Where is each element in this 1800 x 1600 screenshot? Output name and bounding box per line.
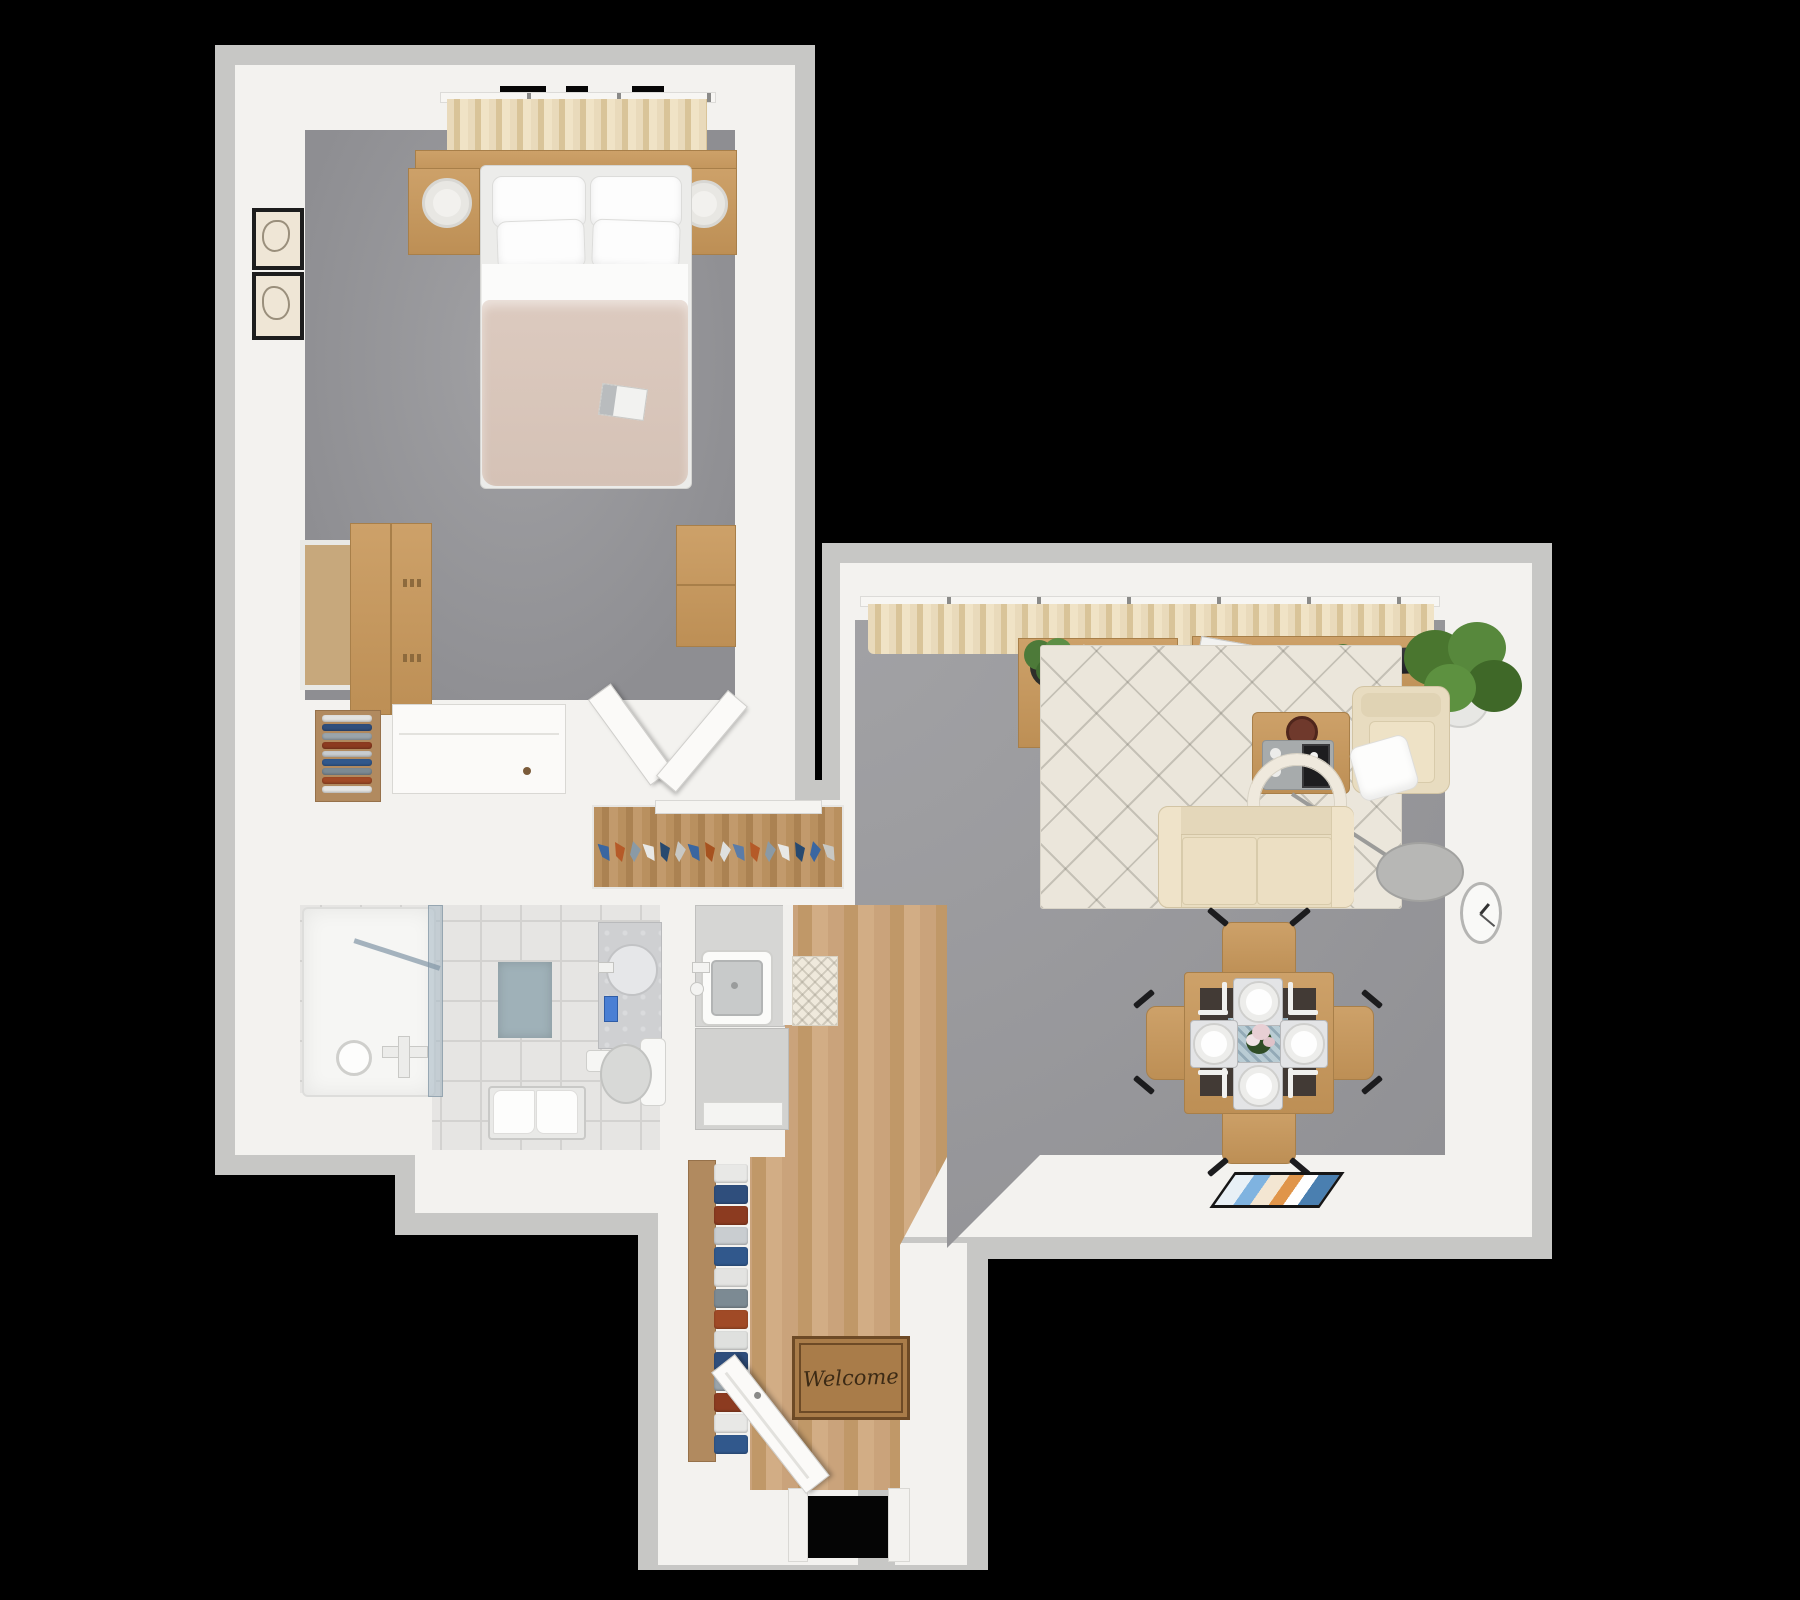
clothes-hanger (822, 841, 837, 863)
kitchen-sink-basin (711, 960, 763, 1016)
clothes-hanger (705, 842, 715, 862)
clothes-hanger (687, 841, 702, 863)
centerpiece-flowers (1252, 1024, 1270, 1040)
clock-hand-minute (1479, 913, 1495, 927)
front-door-jamb (888, 1488, 910, 1562)
sofa (1158, 806, 1354, 908)
sink-drain (731, 982, 738, 989)
kitchen-mat (792, 956, 838, 1026)
arc-lamp-base (1376, 842, 1464, 902)
sofa-armrest (1159, 807, 1182, 907)
dresser-drawer-line (677, 584, 735, 586)
floorplan-render: Welcome XMAX (0, 0, 1800, 1600)
folded-cloth (714, 1310, 748, 1329)
sofa-seat-cushion (1182, 837, 1257, 905)
dinner-plate (1283, 1023, 1325, 1065)
closet-cabinet (392, 704, 566, 794)
leaning-mirror (300, 540, 356, 690)
cabinet-knob (523, 767, 531, 775)
cutlery (1288, 982, 1293, 1012)
wall-clock (1460, 882, 1502, 944)
dinner-plate (1193, 1023, 1235, 1065)
sofa-back (1181, 807, 1331, 835)
armchair-back (1361, 693, 1441, 717)
dinner-plate (1238, 1065, 1280, 1107)
toilet-bowl (600, 1044, 652, 1104)
folded-cloth (714, 1164, 748, 1183)
folded-cloth (322, 759, 372, 766)
folded-cloth (322, 751, 372, 758)
hanging-closet-shelf (655, 800, 822, 814)
folded-cloth (714, 1227, 748, 1246)
clothes-hanger (777, 841, 792, 863)
folded-cloth (714, 1414, 748, 1433)
folded-towel (536, 1090, 578, 1134)
wardrobe-vents (403, 654, 421, 662)
folded-towel (493, 1090, 535, 1134)
cutlery (1222, 982, 1227, 1012)
sink-faucet (692, 962, 710, 973)
cutlery (1288, 1070, 1318, 1075)
folded-cloth (322, 715, 372, 722)
cabinet-drawer-line (399, 733, 559, 735)
wall-art-scribble (262, 286, 290, 320)
shower-controls (398, 1036, 410, 1078)
bath-mat (498, 962, 552, 1038)
folded-cloth (714, 1206, 748, 1225)
wardrobe-vents (403, 579, 421, 587)
folded-cloth (714, 1185, 748, 1204)
folded-cloth (322, 786, 372, 793)
door-knob (753, 1391, 763, 1401)
vanity-faucet (598, 962, 614, 973)
front-door-gap (806, 1496, 890, 1558)
cutlery (1198, 1010, 1228, 1015)
refrigerator-door (703, 1102, 783, 1126)
folded-cloth (322, 768, 372, 775)
clothes-hanger (627, 841, 642, 863)
sink-faucet-handle (690, 982, 704, 996)
bed-duvet (482, 300, 688, 486)
folded-cloth (714, 1247, 748, 1266)
clothes-hanger (762, 841, 777, 863)
shower-head (336, 1040, 372, 1076)
sofa-armrest (1331, 807, 1354, 907)
clothes-hanger (615, 842, 625, 862)
folded-cloth (322, 777, 372, 784)
folded-cloth (322, 742, 372, 749)
front-door-jamb (788, 1488, 808, 1562)
dining-chair-south (1222, 1108, 1296, 1164)
clothes-hanger (597, 841, 612, 863)
soap-pump (604, 996, 618, 1022)
folded-cloth (714, 1331, 748, 1350)
entry-closet-panel (688, 1160, 716, 1462)
welcome-mat-text: Welcome (803, 1364, 900, 1391)
table-lamp-left (422, 178, 472, 228)
clothes-hanger (717, 841, 732, 863)
dinner-plate (1238, 981, 1280, 1023)
folded-cloth (714, 1268, 748, 1287)
shower-glass-panel (428, 905, 443, 1097)
closet-folded-clothes (322, 715, 372, 795)
cutlery (1288, 1010, 1318, 1015)
welcome-mat: Welcome (792, 1336, 910, 1420)
shower-tray (302, 907, 436, 1097)
magazine-on-bed (598, 383, 648, 421)
cutlery (1198, 1070, 1228, 1075)
bedroom-dresser (676, 525, 736, 647)
clothes-hanger (795, 842, 805, 862)
clothes-hanger (807, 841, 822, 863)
wardrobe-door-line (390, 524, 392, 714)
dining-chair-north (1222, 922, 1296, 978)
folded-cloth (322, 724, 372, 731)
clothes-hanger (642, 841, 657, 863)
clothes-hanger (672, 841, 687, 863)
clothes-hanger (750, 842, 760, 862)
sofa-seat-cushion (1257, 837, 1332, 905)
hanging-clothes-row (600, 840, 836, 868)
folded-cloth (322, 733, 372, 740)
clothes-hanger (732, 841, 747, 863)
wardrobe (350, 523, 432, 715)
folded-cloth (714, 1435, 748, 1454)
clothes-hanger (660, 842, 670, 862)
folded-cloth (714, 1289, 748, 1308)
